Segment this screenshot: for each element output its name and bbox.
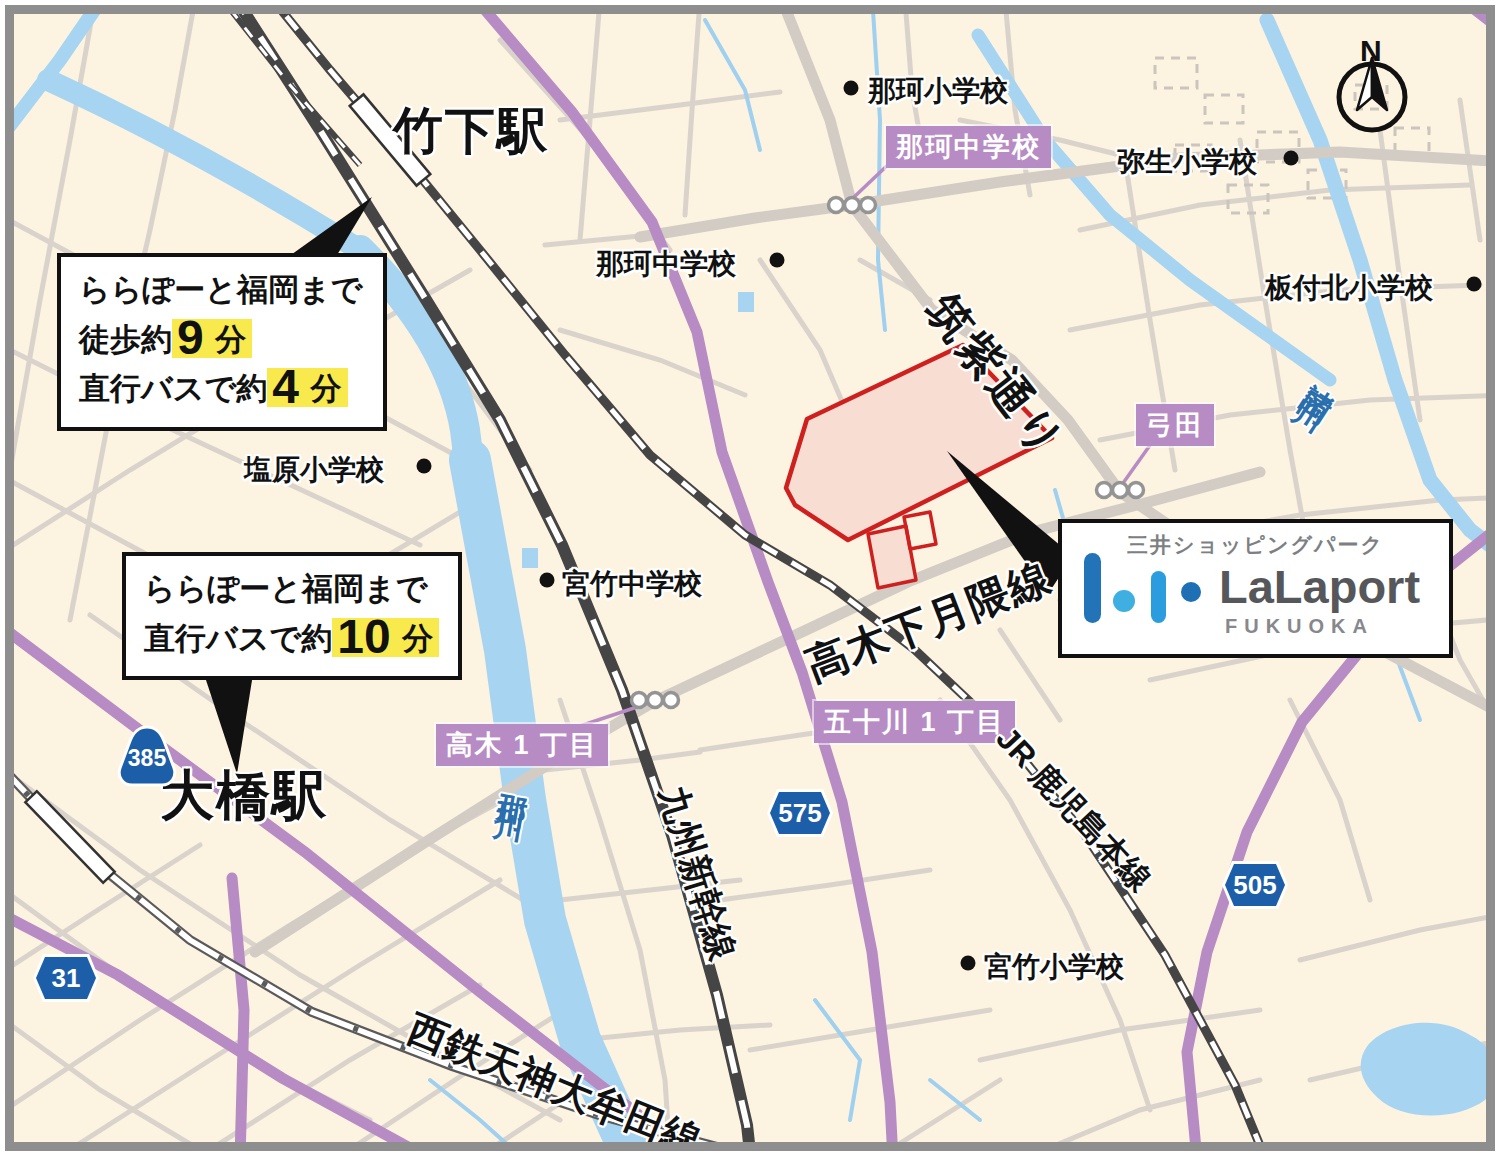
callout-ohashi: ららぽーと福岡まで 直行バスで約10 分 bbox=[122, 552, 462, 680]
school-label-miyatake-jhs: 宮竹中学校 bbox=[562, 565, 702, 603]
school-dot-shiobaru-elem bbox=[417, 459, 432, 474]
callout-takeshita-walk: 徒歩約9 分 bbox=[79, 314, 365, 364]
school-label-naka-elem: 那珂小学校 bbox=[868, 72, 1008, 110]
bus-stop-label-takagi-1chome: 高木 1 丁目 bbox=[436, 724, 608, 766]
route-shield-575: 575 bbox=[767, 789, 833, 837]
school-dot-naka-elem bbox=[844, 81, 859, 96]
school-label-shiobaru-elem: 塩原小学校 bbox=[244, 451, 384, 489]
callout-ohashi-line1: ららぽーと福岡まで bbox=[144, 566, 440, 613]
school-label-yayoi-elem: 弥生小学校 bbox=[1117, 143, 1257, 181]
school-dot-yayoi-elem bbox=[1284, 151, 1299, 166]
school-label-naka-jhs: 那珂中学校 bbox=[596, 245, 736, 283]
station-label-takeshita: 竹下駅 bbox=[393, 98, 549, 165]
route-shield-385: 385 bbox=[116, 724, 178, 788]
bus-stop-icon-takagi bbox=[632, 693, 679, 708]
callout-takeshita-bus: 直行バスで約4 分 bbox=[79, 363, 365, 413]
compass-north-label: N bbox=[1360, 34, 1382, 68]
callout-takeshita-line1: ららぽーと福岡まで bbox=[79, 267, 365, 314]
school-dot-miyatake-elem bbox=[961, 956, 976, 971]
school-label-miyatake-elem: 宮竹小学校 bbox=[984, 948, 1124, 986]
bus-stop-label-yumita: 弓田 bbox=[1136, 404, 1214, 446]
route-shield-31: 31 bbox=[33, 954, 99, 1002]
map-canvas: 竹下駅 大橋駅 ららぽーと福岡まで 徒歩約9 分 直行バスで約4 分 ららぽーと… bbox=[0, 0, 1500, 1156]
school-dot-itazukekita-elem bbox=[1467, 277, 1482, 292]
callout-ohashi-bus: 直行バスで約10 分 bbox=[144, 613, 440, 663]
station-label-ohashi: 大橋駅 bbox=[160, 760, 328, 833]
school-dot-miyatake-jhs bbox=[540, 573, 555, 588]
school-label-itazukekita-elem: 板付北小学校 bbox=[1265, 269, 1433, 307]
route-shield-505: 505 bbox=[1222, 861, 1288, 909]
bus-stop-icon-yumita bbox=[1097, 483, 1144, 498]
logo-location-text: FUKUOKA bbox=[1225, 615, 1374, 638]
callout-takeshita: ららぽーと福岡まで 徒歩約9 分 直行バスで約4 分 bbox=[57, 253, 387, 431]
bus-stop-label-naka-jhs: 那珂中学校 bbox=[886, 126, 1051, 168]
lalaport-logo-icon bbox=[1082, 551, 1207, 627]
bus-stop-label-isogawa-1chome: 五十川 1 丁目 bbox=[814, 701, 1015, 743]
bus-stop-icon-naka-jhs bbox=[829, 198, 876, 213]
school-dot-naka-jhs bbox=[770, 253, 785, 268]
logo-brand-text: LaLaport bbox=[1219, 559, 1420, 614]
lalaport-logo-box: 三井ショッピングパーク LaLaport FUKUOKA bbox=[1058, 519, 1453, 658]
